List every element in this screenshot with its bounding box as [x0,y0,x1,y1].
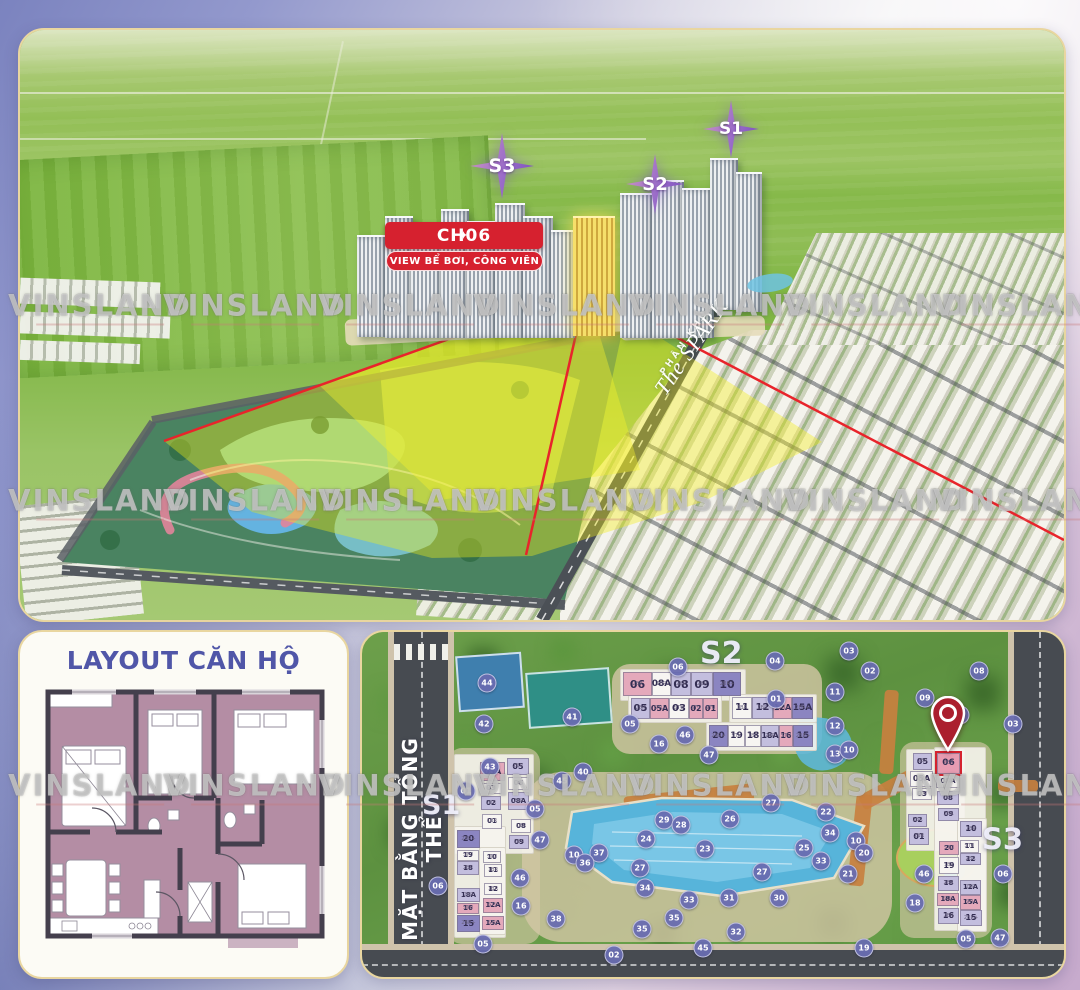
amenity-marker: 16 [650,735,669,754]
unit-cell: 05A STU [910,771,933,787]
unit-type: STU [943,897,953,902]
unit-cell: 06 1BR [508,777,529,790]
unit-cell: 20 2BR+ [457,830,480,848]
amenity-marker-number: 35 [668,914,679,923]
amenity-marker: 32 [727,923,746,942]
amenity-marker-number: 06 [997,870,1008,879]
amenity-marker-number: 37 [593,849,604,858]
unit-cell: 15A STU [482,916,504,930]
amenity-marker-number: 32 [730,928,741,937]
unit-type: 2BR+ [796,734,810,739]
amenity-marker: 05 [621,715,640,734]
amenity-marker-number: 26 [724,815,735,824]
unit-cell: 15 2BR+ [793,725,813,747]
amenity-marker-number: 45 [697,944,708,953]
amenity-marker: 47 [991,929,1010,948]
amenity-marker: 02 [605,946,624,965]
amenity-marker: 24 [637,830,656,849]
sparkle-icon: ✦ [459,229,469,242]
unit-type: 2BR [632,682,642,687]
amenity-marker-number: 05 [529,805,540,814]
unit-cell: 12A 2BR [960,880,981,895]
amenity-marker: 25 [795,839,814,858]
unit-type: 1BR [656,682,666,687]
unit-cell: 05 2BR [913,753,932,770]
amenity-marker: 01 [457,782,476,801]
amenity-marker: 34 [821,824,840,843]
unit-type: STU [965,844,975,849]
amenity-marker-number: 19 [858,944,869,953]
unit-cell: 18 2BR [938,876,959,891]
amenity-marker-number: 30 [773,894,784,903]
amenity-marker: 10 [840,741,859,760]
amenity-marker: 42 [475,715,494,734]
amenity-marker-number: 05 [477,940,488,949]
tower [620,193,654,338]
unit-type: 2BR [943,881,953,886]
siteplan-panel: 06 2BR 08A 1BR 08 2BR 09 2BR 10 2BR+ 05 … [360,630,1066,979]
unit-type: 1BR [737,706,747,711]
unit-type: 1BR [516,824,526,829]
location-pin-icon [929,696,967,752]
unit-cell: 02 2BR [481,796,501,810]
unit-cell: 15 2BR+ [960,910,982,926]
unit-cell: 18A 2BR [457,888,480,902]
amenity-marker-number: 01 [460,787,471,796]
amenity-marker: 05 [957,930,976,949]
unit-cell: 08 1BR [511,819,531,833]
amenity-marker: 35 [633,920,652,939]
unit-type: STU [486,786,496,791]
unit-cell: 20 2BR+ [709,725,728,747]
unit-cell: 09 2BR [691,672,713,696]
amenity-marker: 28 [672,816,691,835]
unit-cell: 03 STU [912,788,932,800]
unit-type: STU [655,706,665,711]
amenity-marker-number: 16 [515,902,526,911]
highlighted-ch06-tower [573,216,615,336]
unit-cell: 08 2BR [937,791,959,805]
amenity-marker-number: 05 [624,720,635,729]
amenity-marker-number: 10 [843,746,854,755]
amenity-marker-number: 33 [815,857,826,866]
amenity-marker-number: 43 [484,763,495,772]
unit-cell: 10 2BR+ [713,672,741,696]
unit-cell: 08A 1BR [936,775,960,788]
unit-type: STU [487,855,497,860]
amenity-marker: 26 [721,810,740,829]
amenity-marker-number: 23 [699,845,710,854]
amenity-marker-number: 41 [566,713,577,722]
amenity-marker: 45 [694,939,713,958]
unit-type: 1BR [487,819,497,824]
unit-cell: 16 STU [457,903,479,914]
amenity-marker-number: 34 [639,884,650,893]
unit-type: 2BR+ [711,734,725,739]
floorplan-panel: LAYOUT CĂN HỘ [18,630,349,979]
amenity-marker-number: 36 [579,859,590,868]
unit-type: STU [781,734,791,739]
amenity-marker: 06 [429,877,448,896]
building-star-badge: S3 [470,133,534,199]
amenity-marker: 36 [576,854,595,873]
amenity-marker-number: 29 [658,816,669,825]
unit-type: 2BR [635,706,645,711]
amenity-marker-number: 20 [858,849,869,858]
unit-type: 1BR [513,781,523,786]
unit-cell: 03 STU [480,783,502,794]
unit-cell: 18A STU [937,893,959,906]
amenity-marker-number: 22 [820,808,831,817]
unit-cell: 18 2BR [457,861,479,875]
amenity-marker: 41 [563,708,582,727]
unit-type: 2BR [514,840,524,845]
amenity-marker-number: 12 [829,722,840,731]
amenity-marker-number: 33 [683,896,694,905]
amenity-marker: 20 [855,844,874,863]
unit-type: 1BR [943,779,953,784]
amenity-marker: 19 [855,939,874,958]
unit-type: 2BR [486,801,496,806]
unit-cell: 01 1BR [482,814,502,829]
amenity-marker: 01 [767,690,786,709]
amenity-marker: 40 [574,763,593,782]
amenity-marker-number: 18 [909,899,920,908]
unit-cell: 05A STU [650,698,669,719]
amenity-marker-number: 01 [770,695,781,704]
amenity-marker: 44 [478,674,497,693]
amenity-marker: 29 [655,811,674,830]
amenity-marker-number: 25 [798,844,809,853]
amenity-marker-number: 46 [679,731,690,740]
unit-cell: 09 2BR [509,835,529,849]
floorplan-title: LAYOUT CĂN HỘ [20,646,347,675]
building-label: S3 [982,822,1023,856]
unit-type: STU [463,853,473,858]
unit-type: 2BR+ [461,921,475,926]
unit-type: STU [917,777,927,782]
unit-type: 2BR [943,761,953,766]
building-badge-label: S2 [626,154,684,214]
amenity-marker: 27 [753,863,772,882]
amenity-marker-number: 04 [769,657,780,666]
unit-type: 2BR [943,796,953,801]
unit-type: 1BR [748,734,758,739]
amenity-marker: 08 [970,662,989,681]
amenity-marker: 27 [631,859,650,878]
unit-type: 2BR+ [964,916,978,921]
unit-cell: 19 STU [728,725,745,747]
unit-type: 2BR+ [720,682,734,687]
amenity-marker: 46 [676,726,695,745]
unit-cell: 10 2BR [960,821,982,837]
unit-type: 2BR+ [795,706,809,711]
amenity-marker: 06 [669,658,688,677]
aerial-render-panel: PHÂN KHU The SPARK S3 S2 S1 ✦ CH06 ✦ V [18,28,1066,622]
unit-cell: 15A 2BR+ [792,697,813,719]
amenity-marker: 33 [680,891,699,910]
unit-type: STU [674,706,684,711]
amenity-marker: 11 [826,683,845,702]
unit-cell: 06 2BR [623,672,652,696]
amenity-marker-number: 42 [478,720,489,729]
unit-type: STU [488,903,498,908]
amenity-marker-number: 06 [432,882,443,891]
amenity-marker: 03 [1004,715,1023,734]
amenity-marker-number: 47 [994,934,1005,943]
unit-type: 2BR [757,706,767,711]
amenity-marker-number: 38 [550,915,561,924]
amenity-marker: 06 [994,865,1013,884]
amenity-marker-number: 35 [636,925,647,934]
unit-type: 2BR [943,914,953,919]
unit-type: 2BR [463,893,473,898]
building-badge-label: S3 [470,133,534,199]
amenity-marker: 34 [636,879,655,898]
unit-cell: 20 STU [939,841,959,855]
unit-callout: ✦ CH06 ✦ [385,222,543,249]
unit-cell: 12A STU [483,898,503,913]
unit-cell: 18 1BR [745,725,761,747]
unit-type: 2BR [966,827,976,832]
unit-cell: 19 STU [457,850,479,861]
amenity-marker-number: 27 [634,864,645,873]
amenity-marker-number: 08 [973,667,984,676]
unit-type: STU [488,921,498,926]
amenity-marker: 46 [511,869,530,888]
unit-cell: 11 STU [960,840,979,853]
unit-type: 2BR [965,885,975,890]
amenity-marker-number: 44 [481,679,492,688]
amenity-marker: 18 [906,894,925,913]
unit-type: 2BR [943,812,953,817]
unit-cell: 11 1BR [732,697,752,719]
amenity-marker-number: 02 [864,667,875,676]
amenity-marker-number: 03 [1007,720,1018,729]
unit-cell: 12 1BR [484,883,502,895]
unit-type: 2BR [765,734,775,739]
amenity-marker: 47 [700,746,719,765]
building-badge-label: S1 [703,100,759,158]
amenity-marker-number: 02 [608,951,619,960]
unit-type: 2BR+ [461,837,475,842]
amenity-marker-number: 47 [534,836,545,845]
amenity-marker: 05 [474,935,493,954]
amenity-marker: 05 [526,800,545,819]
building-star-badge: S1 [703,100,759,158]
unit-type: 2BR [912,818,922,823]
unit-type: 1BR [488,887,498,892]
amenity-marker-number: 21 [842,870,853,879]
amenity-marker: 22 [817,803,836,822]
unit-cell: 06 2BR [937,753,960,774]
unit-type: STU [732,734,742,739]
real-estate-flyer: PHÂN KHU The SPARK S3 S2 S1 ✦ CH06 ✦ V [0,0,1080,990]
unit-type: 2BR [513,764,523,769]
amenity-marker: 46 [915,865,934,884]
amenity-marker-number: 03 [843,647,854,656]
siteplan-side-label: MẶT BẰNG TỔNG THỂ [398,724,424,954]
building-star-badge: S2 [626,154,684,214]
amenity-marker: 45 [553,772,572,791]
unit-type: STU [944,846,954,851]
amenity-marker-number: 05 [960,935,971,944]
unit-cell: 15A STU [960,895,981,910]
building-label: S2 [700,636,742,671]
unit-cell: 05 2BR [507,758,529,775]
amenity-marker-number: 40 [577,768,588,777]
unit-type: 1BR [488,868,498,873]
amenity-marker: 47 [531,831,550,850]
unit-cell: 01 STU [703,698,718,719]
unit-cell: 16 2BR [938,908,959,924]
amenity-marker: 38 [547,910,566,929]
unit-type: 2BR [513,799,523,804]
amenity-marker: 03 [840,642,859,661]
amenity-marker: 21 [839,865,858,884]
unit-type: STU [917,792,927,797]
amenity-marker-number: 45 [556,777,567,786]
amenity-marker-number: 24 [640,835,651,844]
amenity-marker-number: 46 [514,874,525,883]
unit-cell: 03 STU [669,698,689,719]
unit-cell: 02 2BR [908,814,927,827]
unit-type: STU [706,706,716,711]
amenity-marker-number: 06 [672,663,683,672]
unit-cell: 15 2BR+ [457,915,480,932]
unit-type: 2BR [697,682,707,687]
amenity-marker-number: 46 [918,870,929,879]
amenity-marker-number: 16 [653,740,664,749]
amenity-marker-number: 27 [756,868,767,877]
unit-cell: 08A 1BR [652,672,671,696]
unit-cell: 18A 2BR [761,725,779,747]
amenity-marker-number: 11 [829,688,840,697]
unit-type: 2BR [463,866,473,871]
amenity-marker: 12 [826,717,845,736]
amenity-marker: 35 [665,909,684,928]
unit-cell: 19 1BR [939,857,959,874]
unit-type: STU [691,706,701,711]
unit-cell: 12 2BR [960,853,981,865]
amenity-marker: 30 [770,889,789,908]
unit-type: 2BR [676,682,686,687]
amenity-marker-number: 34 [824,829,835,838]
unit-cell: 10 STU [483,851,501,863]
unit-cell: 01 2BR [909,828,929,845]
unit-type: 2BR [917,759,927,764]
amenity-marker: 43 [481,758,500,777]
crosswalk [394,644,448,660]
tower [357,235,387,337]
unit-type: STU [966,900,976,905]
amenity-marker-number: 31 [723,894,734,903]
unit-cell: 02 STU [689,698,703,719]
tower [551,230,575,338]
amenity-marker: 27 [762,794,781,813]
apartment-floorplan [32,684,335,966]
amenity-marker-number: 27 [765,799,776,808]
amenity-marker-number: 28 [675,821,686,830]
unit-cell: 09 2BR [938,808,959,821]
unit-type: STU [463,906,473,911]
amenity-marker: 02 [861,662,880,681]
unit-callout-subtitle: VIEW BỂ BƠI, CÔNG VIÊN [386,251,543,271]
amenity-marker: 31 [720,889,739,908]
unit-cell: 11 1BR [484,864,502,877]
unit-type: 2BR [914,834,924,839]
unit-type: 2BR [965,857,975,862]
amenity-marker: 16 [512,897,531,916]
amenity-marker-number: 47 [703,751,714,760]
amenity-marker: 33 [812,852,831,871]
unit-cell: 16 STU [779,725,793,747]
unit-type: 1BR [944,863,954,868]
amenity-marker: 04 [766,652,785,671]
amenity-marker: 23 [696,840,715,859]
